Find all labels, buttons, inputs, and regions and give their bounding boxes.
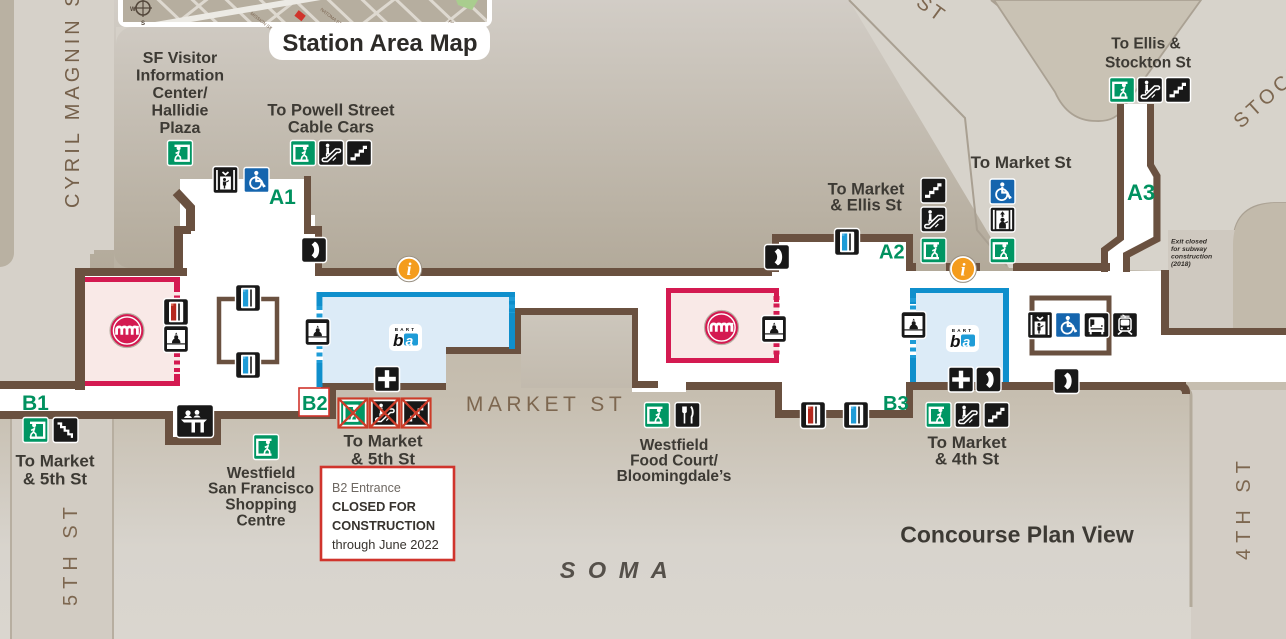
svg-text:a: a [406, 333, 414, 349]
svg-text:through June 2022: through June 2022 [332, 537, 439, 552]
svg-text:construction: construction [1171, 254, 1212, 261]
svg-text:Concourse Plan View: Concourse Plan View [900, 522, 1134, 548]
svg-text:& 4th St: & 4th St [935, 450, 1000, 469]
svg-text:CYRIL MAGNIN ST: CYRIL MAGNIN ST [62, 0, 84, 208]
svg-text:Information: Information [136, 68, 224, 85]
svg-text:Exit closed: Exit closed [1171, 239, 1208, 246]
svg-text:Station Area Map: Station Area Map [282, 30, 477, 57]
svg-text:Centre: Centre [236, 513, 285, 530]
svg-text:To Powell Street: To Powell Street [267, 102, 395, 120]
svg-text:A1: A1 [269, 186, 296, 209]
svg-text:A3: A3 [1127, 180, 1155, 205]
svg-text:Food Court/: Food Court/ [630, 453, 719, 470]
svg-text:To Ellis &: To Ellis & [1111, 36, 1180, 53]
svg-text:S: S [141, 21, 145, 27]
svg-text:A2: A2 [879, 242, 905, 264]
svg-text:Hallidie: Hallidie [152, 103, 209, 120]
svg-text:Shopping: Shopping [225, 497, 296, 514]
svg-text:& 5th St: & 5th St [23, 470, 88, 489]
svg-text:San Francisco: San Francisco [208, 481, 314, 498]
svg-text:CLOSED FOR: CLOSED FOR [332, 499, 416, 514]
svg-text:B2: B2 [302, 393, 328, 415]
svg-text:b: b [393, 331, 403, 350]
svg-text:& 5th St: & 5th St [351, 450, 416, 469]
svg-text:To Market: To Market [343, 432, 422, 451]
svg-text:(2018): (2018) [1171, 261, 1191, 268]
svg-text:Plaza: Plaza [160, 120, 201, 137]
svg-text:Stockton St: Stockton St [1105, 55, 1191, 72]
svg-text:SF Visitor: SF Visitor [143, 50, 217, 67]
svg-text:W: W [130, 7, 136, 13]
svg-text:4TH ST: 4TH ST [1233, 455, 1255, 560]
svg-text:i: i [407, 259, 412, 279]
svg-text:MARKET ST: MARKET ST [466, 393, 626, 416]
svg-text:B2 Entrance: B2 Entrance [332, 481, 401, 495]
svg-text:5TH ST: 5TH ST [60, 501, 82, 606]
svg-text:SOMA: SOMA [560, 557, 681, 583]
svg-text:a: a [963, 334, 971, 350]
svg-text:Westfield: Westfield [227, 465, 296, 482]
svg-text:i: i [960, 260, 965, 280]
svg-text:Westfield: Westfield [640, 437, 709, 454]
svg-text:Bloomingdale’s: Bloomingdale’s [617, 468, 732, 485]
svg-text:CONSTRUCTION: CONSTRUCTION [332, 518, 435, 533]
svg-text:B3: B3 [883, 393, 909, 415]
svg-text:To Market: To Market [15, 452, 94, 471]
svg-text:for subway: for subway [1171, 246, 1208, 253]
svg-text:Cable Cars: Cable Cars [288, 119, 374, 137]
svg-text:To Market St: To Market St [971, 153, 1072, 172]
svg-text:b: b [950, 332, 960, 351]
svg-text:B1: B1 [22, 392, 49, 415]
svg-text:& Ellis St: & Ellis St [830, 197, 902, 215]
svg-text:Center/: Center/ [152, 85, 208, 102]
